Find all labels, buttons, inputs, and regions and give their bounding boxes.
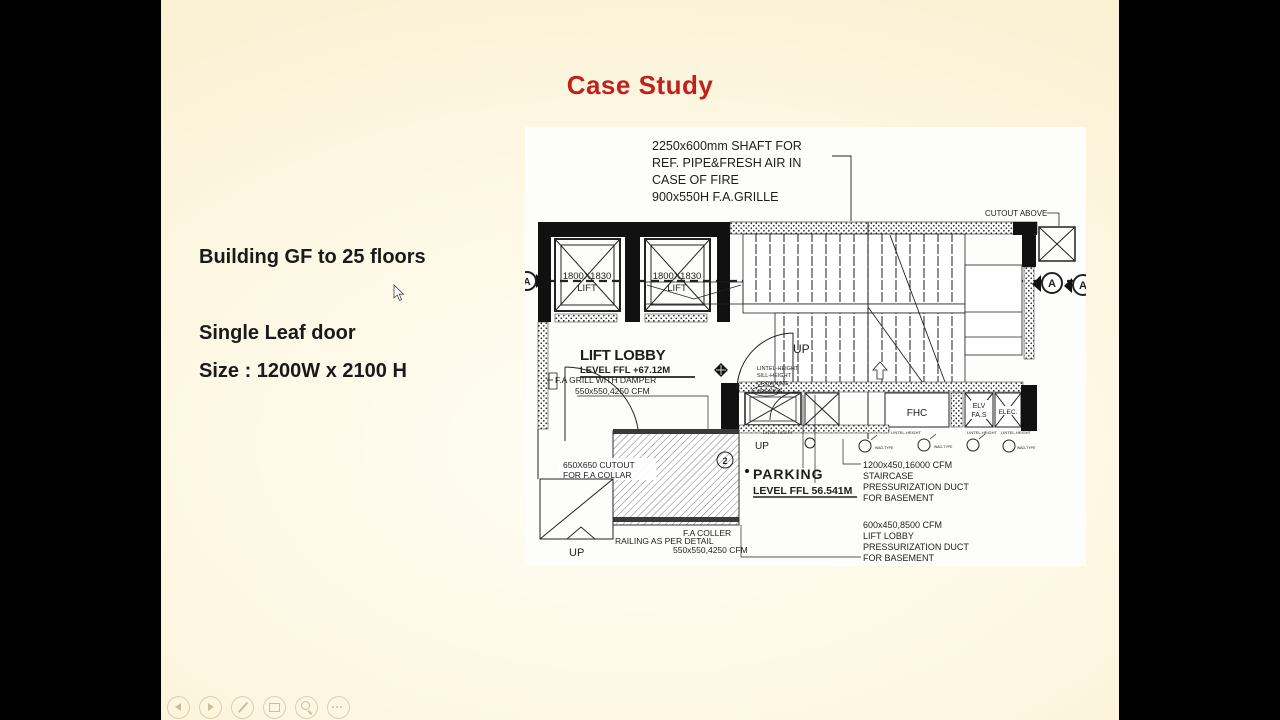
section-marker-right-1: A [1032,273,1062,293]
tiny-note: LINTEL-HEIGHT [1001,430,1032,435]
fhc-label: FHC [907,408,928,419]
section-marker-right-2: A [1064,275,1086,295]
parking-level: LEVEL FFL 56.541M [753,485,853,497]
svg-text:PRESSURIZATION DUCT: PRESSURIZATION DUCT [863,482,969,492]
svg-text:WAD-TYPE: WAD-TYPE [875,446,894,450]
bullet-size: Size : 1200W x 2100 H [199,360,407,383]
svg-text:A: A [1079,280,1086,292]
svg-text:FOR BASEMENT: FOR BASEMENT [863,553,935,563]
wall-left [538,222,551,322]
tiny-note: LINTEL-HEIGHT [763,430,794,435]
next-slide-button[interactable] [199,696,222,719]
mouse-cursor [393,284,405,302]
svg-text:A: A [525,277,531,288]
next-icon [208,703,214,711]
lift2-label: LIFT [667,283,687,294]
stair-up-label: UP [793,342,810,356]
fa-grill-note-1: F.A GRILL WITH DAMPER [555,375,656,385]
lift2-size-label: 1800X1830 [653,271,702,282]
bottom-up-label: UP [569,547,584,559]
lift1-size-label: 1800X1830 [563,271,612,282]
ellipsis-icon [332,706,342,708]
pen-button[interactable] [231,696,254,719]
svg-text:2: 2 [722,456,727,466]
wall-mid [625,222,640,322]
svg-text:WAD-TYPE: WAD-TYPE [934,445,953,449]
lobby-duct-note: 600x450,8500 CFM LIFT LOBBY PRESSURIZATI… [863,520,969,563]
tiny-note: LINTEL-HEIGHT [891,430,922,435]
bullet-building: Building GF to 25 floors [199,246,426,269]
svg-text:STAIRCASE: STAIRCASE [863,471,913,481]
parking-label: PARKING [753,466,824,482]
elec-label: ELEC. [999,409,1018,416]
hatched-wall-right [1024,267,1034,359]
cutout-above-label: CUTOUT ABOVE [985,209,1047,218]
display-icon [269,703,280,712]
svg-text:PRESSURIZATION DUCT: PRESSURIZATION DUCT [863,542,969,552]
parking-up-label: UP [755,441,769,452]
svg-text:OPENING: OPENING [757,389,782,395]
fas-label: FA.S [971,412,987,419]
magnifier-icon [301,701,310,710]
fa-cutout-note-1: 650X650 CUTOUT [563,460,635,470]
wall-right [717,222,730,322]
tiny-note: LINTEL-HEIGHT [967,430,998,435]
svg-text:WAD-TYPE: WAD-TYPE [1017,446,1036,450]
fa-grill-note-2: 550x550,4250 CFM [575,386,650,396]
bullet-door: Single Leaf door [199,322,356,345]
fa-coller-size: 550x550,4250 CFM [673,545,748,555]
lobby-left-wall [538,322,548,429]
floor-plan-image: 1800X1830 LIFT 1800X1830 LIFT CUTOUT ABO… [525,127,1086,566]
lift2-sill [645,314,707,322]
pipe-symbols: WAD-TYPE WAD-TYPE WAD-TYPE [805,434,1036,452]
shaft-note-3: CASE OF FIRE [652,173,739,187]
slide-title: Case Study [161,70,1119,101]
lift1-sill [555,314,617,322]
pen-icon [238,702,248,713]
svg-text:1200x450,16000 CFM: 1200x450,16000 CFM [863,460,952,470]
shaft-note-2: REF. PIPE&FRESH AIR IN [652,156,801,170]
zoom-button[interactable] [295,696,318,719]
previous-icon [175,703,181,711]
svg-text:LINTEL-HEIGHT: LINTEL-HEIGHT [757,366,799,372]
svg-text:A: A [1048,278,1056,290]
svg-text:SILL-HEIGHT: SILL-HEIGHT [757,373,792,379]
lift1-label: LIFT [577,283,597,294]
stair-upper-flight [743,234,965,304]
elv-label: ELV [973,403,986,410]
svg-text:LIFT LOBBY: LIFT LOBBY [863,531,914,541]
display-settings-button[interactable] [263,696,286,719]
presentation-slide: Case Study Building GF to 25 floors Sing… [161,0,1119,720]
stair-landing [743,304,965,313]
previous-slide-button[interactable] [167,696,190,719]
slideshow-toolbar [167,696,350,719]
shaft-note-1: 2250x600mm SHAFT FOR [652,139,802,153]
hatched-wall-top [730,222,1037,234]
svg-text:600x450,8500 CFM: 600x450,8500 CFM [863,520,942,530]
more-options-button[interactable] [327,696,350,719]
floor-plan-svg: 1800X1830 LIFT 1800X1830 LIFT CUTOUT ABO… [525,127,1086,566]
shaft-note-4: 900x550H F.A.GRILLE [652,190,778,204]
lift-lobby-label: LIFT LOBBY [580,347,666,364]
svg-text:FOR BASEMENT: FOR BASEMENT [863,493,935,503]
stair-duct-note: 1200x450,16000 CFM STAIRCASE PRESSURIZAT… [863,460,969,503]
